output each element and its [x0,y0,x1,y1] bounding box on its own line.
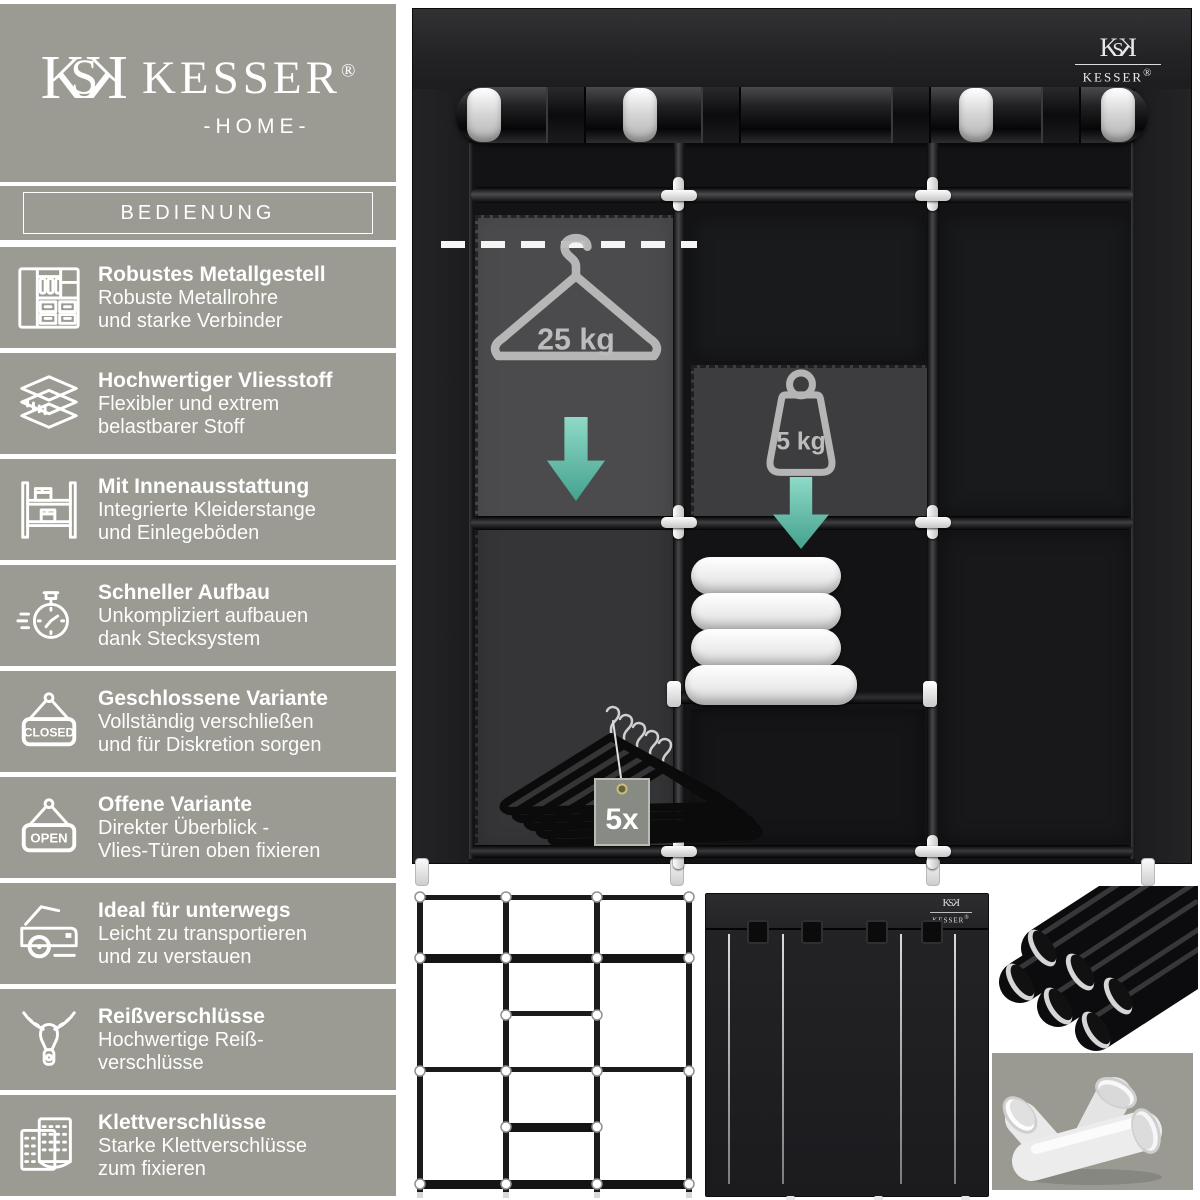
valance-kesser-logo: KSK KESSER® [1063,35,1173,85]
kesser-monogram-icon: KSK [922,898,980,909]
svg-text:CLOSED: CLOSED [24,725,75,739]
zipper-line [782,934,784,1184]
kesser-monogram-icon: KSK [41,47,128,109]
brand-logo-block: KSK KESSER® -HOME- [0,4,396,182]
hanging-rod [471,187,1133,203]
plastic-connector-figure [992,1053,1198,1193]
frame-pole [927,143,939,859]
zipper-line [954,934,956,1184]
fabric-layers-icon [0,369,98,439]
right-top-cell [941,215,1131,515]
feature-metal-frame: Robustes Metallgestell Robuste Metallroh… [0,247,396,348]
wardrobe-foot-small [786,1196,795,1200]
feature-zippers: Reißverschlüsse Hochwertige Reiß- versch… [0,989,396,1090]
feature-open-variant: OPEN Offene Variante Direkter Überblick … [0,777,396,878]
rolled-door [456,87,1148,143]
middle-top-cell [691,215,925,361]
wardrobe-foot [1141,858,1155,886]
connector [661,517,697,528]
product-infographic: KSK KESSER® -HOME- BEDIENUNG [0,0,1200,1200]
roll-strap [1041,87,1081,143]
kesser-monogram-icon: KSK [1063,35,1173,61]
wardrobe-main-photo: KSK KESSER® [412,8,1192,864]
wardrobe-side-panel-right [1135,89,1191,863]
connector [915,517,951,528]
roll-strap [891,87,931,143]
hanger-capacity-graphic: 25 kg [481,217,671,417]
velcro-tab [921,920,943,944]
logo-wordmark: KESSER® [1063,67,1173,85]
connector [915,846,951,857]
folded-towel [691,629,841,667]
stopwatch-icon [0,581,98,651]
folded-towel [691,593,841,631]
svg-text:5x: 5x [605,803,639,836]
wardrobe-foot [415,858,429,886]
velcro-tab [866,920,888,944]
feature-interior: Mit Innenausstattung Integrierte Kleider… [0,459,396,560]
roll-strap [546,87,586,143]
feature-fast-assembly: Schneller Aufbau Unkompliziert aufbauen … [0,565,396,666]
wardrobe-foot-small [874,1196,883,1200]
right-bottom-cell [941,531,1131,843]
svg-text:5 kg: 5 kg [776,428,825,455]
closed-sign-icon: CLOSED [0,687,98,757]
feature-line: Robuste Metallrohre [98,287,390,310]
shelf-rack-icon [0,475,98,545]
svg-text:OPEN: OPEN [30,830,67,845]
covered-wardrobe-figure: KSK KESSER® [705,893,989,1197]
roll-strap [701,87,741,143]
wardrobe-icon [0,263,98,333]
feature-fleece: Hochwertiger Vliesstoff Flexibler und ex… [0,353,396,454]
wardrobe-side-panel-left [413,89,469,863]
roll-end-cap [623,88,657,142]
feature-velcro: Klettverschlüsse Starke Klettverschlüsse… [0,1095,396,1196]
hanger-bundle-graphic: 5x [491,693,763,863]
shelf-bracket [923,681,937,707]
velcro-tab [801,920,823,944]
feature-list: Robustes Metallgestell Robuste Metallroh… [0,247,396,1196]
velcro-tab [747,920,769,944]
brand-home-label: -HOME- [204,115,311,139]
wardrobe-foot-small [961,1196,970,1200]
zipper-line [900,934,902,1184]
logo-divider [1075,64,1161,65]
section-header: BEDIENUNG [0,186,396,240]
connector [661,190,697,201]
frame-edge-right [1131,143,1135,859]
car-trunk-icon [0,899,98,969]
connector [915,190,951,201]
feature-closed-variant: CLOSED Geschlossene Variante Vollständig… [0,671,396,772]
section-header-label: BEDIENUNG [23,192,373,234]
frame-figure [413,888,699,1200]
feature-title: Robustes Metallgestell [98,262,390,287]
folded-towel [691,557,841,595]
roll-end-cap [467,88,501,142]
logo-divider [930,912,972,913]
feature-line: und starke Verbinder [98,310,390,333]
svg-text:25 kg: 25 kg [537,322,615,356]
brand-name: KESSER® [142,51,355,105]
open-sign-icon: OPEN [0,793,98,863]
feature-portable: Ideal für unterwegs Leicht zu transporti… [0,883,396,984]
roll-end-cap [959,88,993,142]
velcro-icon [0,1111,98,1181]
roll-end-cap [1101,88,1135,142]
metal-tubes-figure [992,886,1198,1056]
frame-edge-left [469,143,473,859]
zipper-line [728,934,730,1184]
zipper-icon [0,1005,98,1075]
